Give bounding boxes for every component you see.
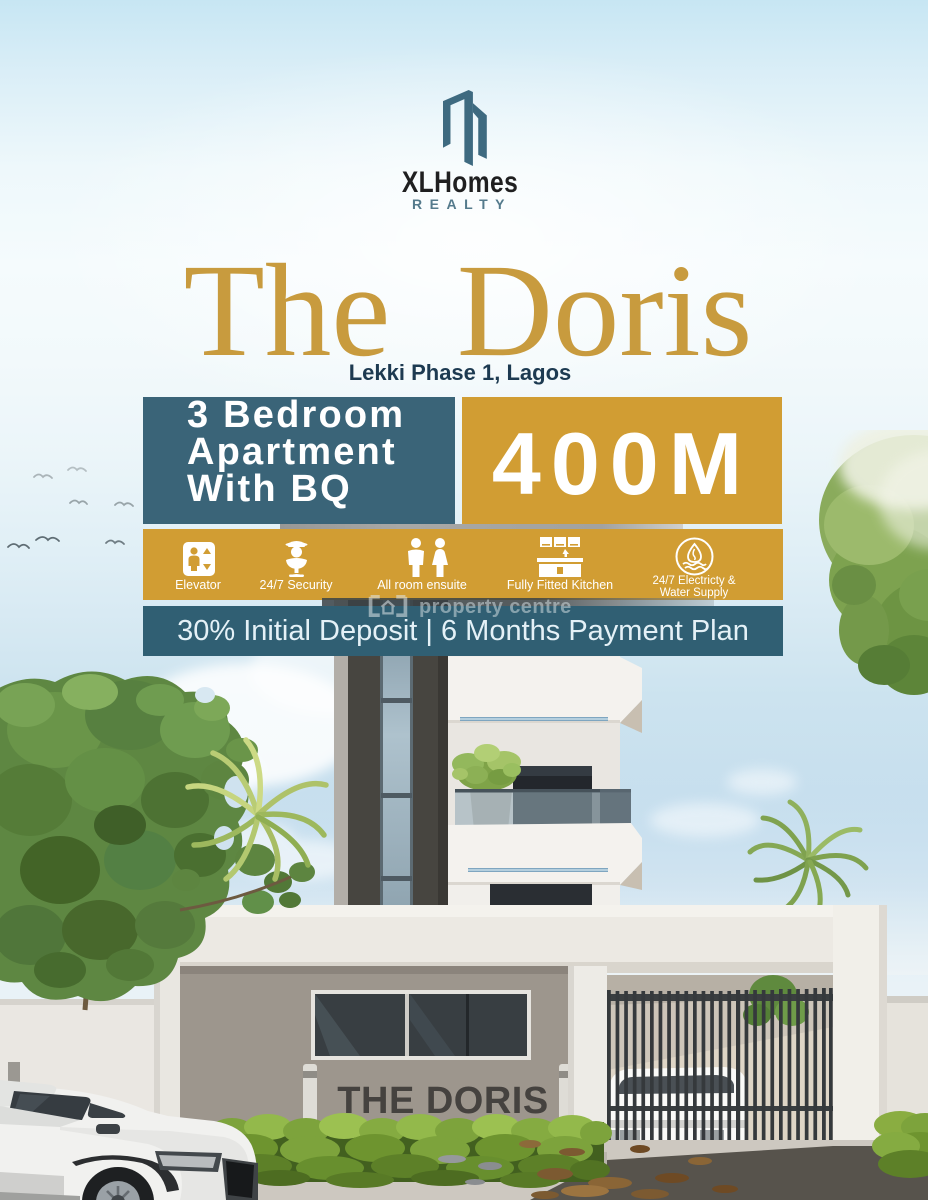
svg-text:THE DORIS: THE DORIS [337,1080,548,1122]
